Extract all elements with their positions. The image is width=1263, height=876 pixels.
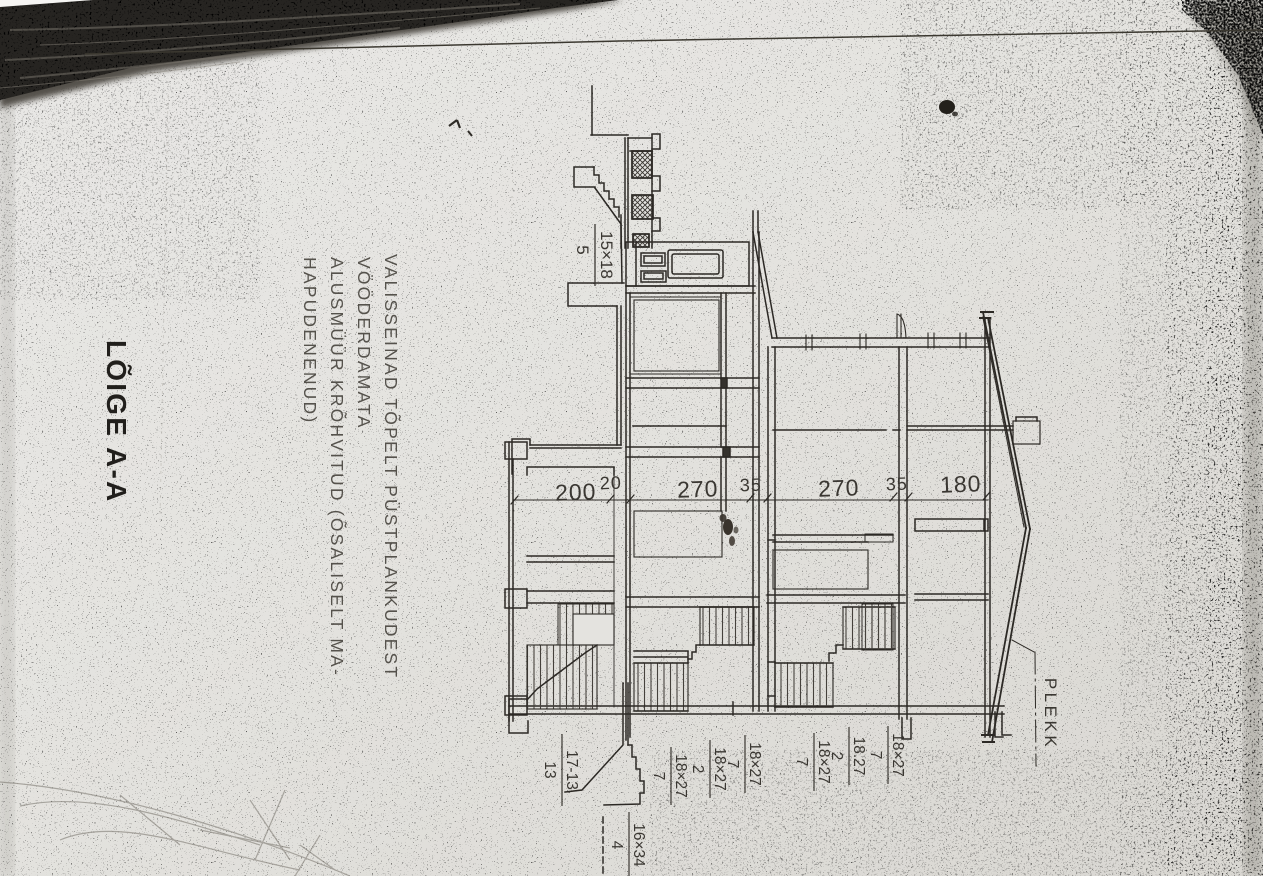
svg-text:PLEKK: PLEKK [1041, 678, 1060, 750]
svg-text:16×34: 16×34 [630, 823, 647, 867]
svg-text:13: 13 [541, 761, 558, 778]
svg-text:270: 270 [677, 475, 719, 502]
svg-text:4: 4 [608, 841, 625, 850]
svg-text:7: 7 [724, 760, 741, 769]
svg-text:5: 5 [573, 245, 592, 254]
svg-text:35: 35 [739, 475, 762, 496]
svg-text:18.27: 18.27 [850, 737, 867, 776]
svg-text:2: 2 [828, 752, 845, 761]
svg-text:LÕIGE A-A: LÕIGE A-A [101, 340, 132, 503]
svg-text:18×27: 18×27 [815, 740, 832, 784]
svg-text:17-13: 17-13 [563, 750, 580, 790]
svg-text:180: 180 [940, 470, 982, 497]
svg-text:2: 2 [689, 765, 706, 774]
svg-text:18×27: 18×27 [889, 733, 906, 777]
svg-text:18×27: 18×27 [711, 747, 728, 791]
svg-text:VÖÖDERDAMATA: VÖÖDERDAMATA [354, 257, 374, 430]
svg-text:15×18: 15×18 [597, 231, 616, 279]
svg-text:HAPUDENENUD): HAPUDENENUD) [300, 257, 320, 424]
svg-text:270: 270 [818, 474, 860, 501]
svg-text:7: 7 [793, 758, 810, 767]
svg-text:18×27: 18×27 [672, 754, 689, 798]
svg-text:200: 200 [555, 478, 597, 505]
svg-text:7: 7 [867, 751, 884, 760]
svg-text:ALUSMÜÜR KRÕHVITUD (ÕSALISELT: ALUSMÜÜR KRÕHVITUD (ÕSALISELT MA- [327, 257, 348, 677]
svg-text:18×27: 18×27 [746, 742, 763, 786]
svg-text:7: 7 [650, 772, 667, 781]
svg-text:VALISSEINAD TÕPELT PÜSTPLANKUD: VALISSEINAD TÕPELT PÜSTPLANKUDEST [381, 254, 402, 679]
svg-text:35: 35 [885, 474, 908, 495]
svg-text:20: 20 [599, 473, 622, 494]
